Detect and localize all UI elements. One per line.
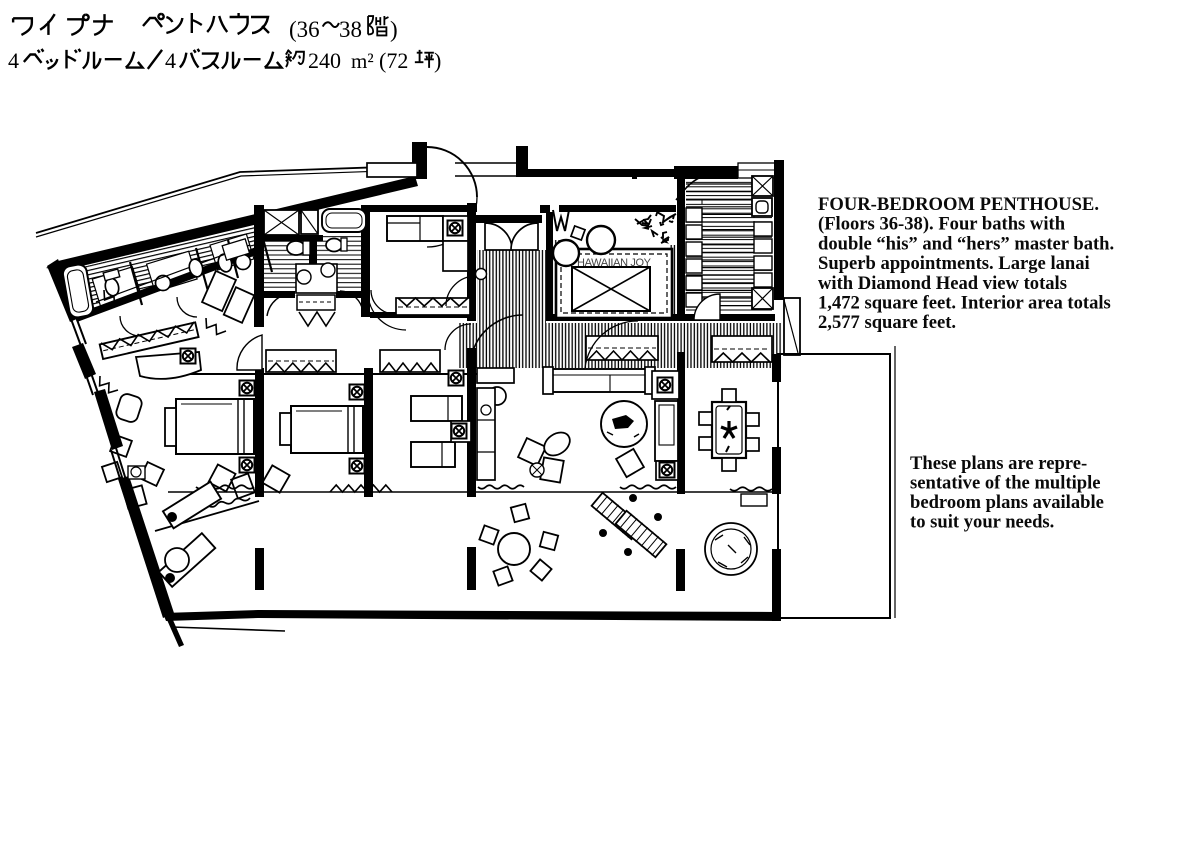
svg-text:double “his” and “hers” master: double “his” and “hers” master bath. — [818, 233, 1114, 254]
svg-text:38: 38 — [339, 17, 362, 42]
svg-text:m²: m² — [351, 49, 374, 73]
svg-text:These plans are repre-: These plans are repre- — [910, 453, 1087, 474]
svg-text:): ) — [390, 17, 398, 42]
svg-text:(36: (36 — [289, 17, 320, 42]
svg-text:4: 4 — [8, 48, 19, 73]
svg-text:with Diamond Head view totals: with Diamond Head view totals — [818, 273, 1067, 294]
svg-text:FOUR-BEDROOM PENTHOUSE.: FOUR-BEDROOM PENTHOUSE. — [818, 194, 1099, 215]
svg-text:bedroom plans available: bedroom plans available — [910, 492, 1104, 513]
svg-text:1,472 square feet. Interior ar: 1,472 square feet. Interior area totals — [818, 293, 1111, 314]
svg-text:HAWAIIAN JOY: HAWAIIAN JOY — [577, 257, 652, 269]
svg-text:Superb appointments. Large lan: Superb appointments. Large lanai — [818, 253, 1090, 274]
svg-text:4: 4 — [165, 48, 176, 73]
svg-text:(72: (72 — [379, 48, 408, 73]
svg-text:to suit your needs.: to suit your needs. — [910, 512, 1054, 533]
svg-text:2,577 square feet.: 2,577 square feet. — [818, 312, 956, 333]
svg-text:sentative of the multiple: sentative of the multiple — [910, 473, 1101, 494]
svg-text:240: 240 — [308, 48, 341, 73]
svg-text:(Floors 36-38). Four baths wit: (Floors 36-38). Four baths with — [818, 214, 1066, 235]
svg-text:): ) — [434, 48, 441, 73]
